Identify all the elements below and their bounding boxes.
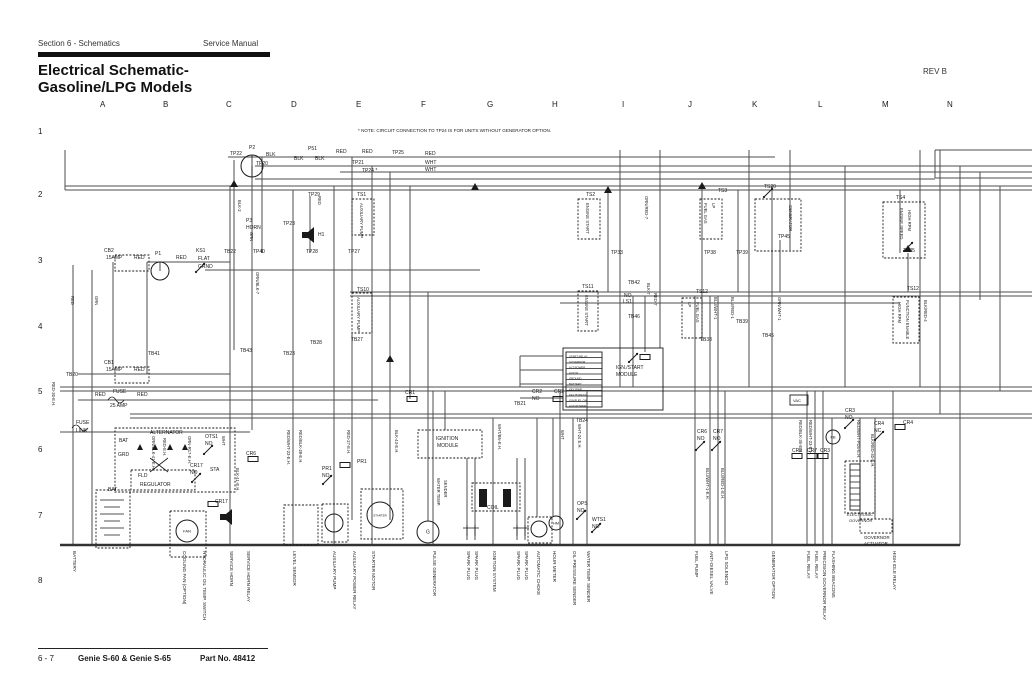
grid-column-letter: I (622, 100, 624, 109)
schematic-label: CR7 (713, 429, 723, 435)
bottom-component-label: FUEL RELAY (814, 551, 819, 579)
schematic-label: TB39 (736, 319, 748, 325)
schematic-label: LP (687, 302, 692, 307)
schematic-label: TP21 (352, 160, 364, 166)
schematic-canvas: ABCDEFGHIJKLMN12345678FANSTARTERHMFBGTP2… (0, 0, 1035, 694)
schematic-label: GRD (118, 452, 130, 458)
grid-row-number: 2 (38, 190, 43, 199)
switch-terminal (636, 353, 638, 355)
schematic-label: PR1 (357, 459, 367, 465)
schematic-label: TP22 (230, 151, 242, 157)
schematic-label: FUEL GAS (703, 203, 708, 224)
schematic-label: TB20 (66, 372, 78, 378)
schematic-label: TP45 (778, 234, 790, 240)
schematic-label: TS10 (357, 287, 369, 293)
schematic-label: NO (697, 436, 705, 442)
schematic-label: CR6 (697, 429, 707, 435)
schematic-label: FUEL GAS (695, 302, 700, 323)
schematic-label: CR2 (554, 389, 564, 395)
bottom-component-label: FLASHING BEACONS (831, 551, 836, 598)
schematic-label: NO (205, 441, 213, 447)
schematic-label: TS11 (582, 284, 594, 290)
schematic-label: WHT-24 E.H. (577, 424, 582, 449)
switch-terminal (330, 475, 332, 477)
schematic-label: TP35 (903, 248, 915, 254)
schematic-label: TB22 (224, 249, 236, 255)
schematic-label: FLAT (198, 256, 210, 262)
switch-terminal (911, 242, 913, 244)
schematic-label: BLK/RED-40-E.H. (870, 434, 875, 468)
grid-row-number: 6 (38, 445, 43, 454)
bottom-component-label: SPARK PLUG (474, 551, 479, 580)
schematic-label: RED-27-E.H. (346, 430, 351, 454)
schematic-label: CR2 (532, 389, 542, 395)
grid-column-letter: C (226, 100, 232, 109)
schematic-label: NO (845, 415, 853, 421)
grid-column-letter: M (882, 100, 889, 109)
schematic-label: BLK (266, 152, 276, 158)
schematic-label: TB27 (351, 337, 363, 343)
schematic-label: TS2 (586, 192, 595, 198)
schematic-label: GROUND (569, 377, 581, 381)
schematic-label: KS1 (196, 248, 206, 254)
schematic-label: GRND (198, 264, 213, 270)
schematic-label: BLU/WHT-1 (713, 297, 718, 320)
schematic-label: WHT (425, 160, 436, 166)
schematic-label: KEY BYPASS (569, 393, 586, 397)
bottom-component-label: BATTERY (72, 551, 77, 572)
bottom-component-label: SERVICE HORN (229, 551, 234, 586)
schematic-label: RED (137, 392, 148, 398)
schematic-label: P3 (246, 218, 252, 224)
schematic-label: BLK (315, 156, 325, 162)
relay-coil (248, 457, 258, 462)
schematic-label: WHT (221, 436, 226, 446)
bottom-component-label: ANTI-DIESEL VALVE (709, 551, 714, 595)
schematic-label: WHT/BN-E.H. (497, 424, 502, 450)
schematic-label: TB43 (240, 348, 252, 354)
bottom-component-label: GENERATOR OPTION (771, 551, 776, 599)
schematic-label: ENGINE START (585, 203, 590, 234)
schematic-label: TP25 (392, 150, 404, 156)
schematic-label: RED (176, 255, 187, 261)
schematic-label: AUXILIARY PUMP (359, 203, 364, 238)
schematic-label: OPS (577, 501, 588, 507)
schematic-label: KEY PWR (569, 388, 582, 392)
schematic-label: BATTERY (569, 382, 582, 386)
schematic-label: TS4 (896, 195, 905, 201)
component-details (72, 155, 860, 536)
component-box (755, 199, 801, 251)
switch-terminal (628, 361, 630, 363)
footer-part-number: Part No. 48412 (200, 654, 255, 663)
schematic-label: COIL (487, 505, 499, 511)
switch-terminal (191, 481, 193, 483)
bottom-component-label: PRECISION GOVERNOR RELAY (822, 551, 827, 620)
schematic-label: CR6 (246, 451, 256, 457)
schematic-label: RED-7 (653, 293, 658, 306)
schematic-label: RED (134, 255, 145, 261)
schematic-label: NO (322, 473, 330, 479)
schematic-label: NO (713, 436, 721, 442)
switch-terminal (199, 473, 201, 475)
grid-column-letter: E (356, 100, 361, 109)
relay-coil (407, 397, 417, 402)
schematic-label: BLU/WHT-1-E.H. (705, 468, 710, 500)
bottom-component-label: STARTER MOTOR (371, 551, 376, 591)
schematic-label: LS1 (623, 299, 632, 305)
schematic-label: AUX POWER (569, 404, 586, 408)
schematic-label: ALT POWER (569, 366, 585, 370)
schematic-label: BLK-2 (237, 200, 242, 212)
schematic-label: START RELAY (569, 355, 588, 359)
schematic-label: RED (70, 296, 75, 305)
schematic-label: H1 (318, 232, 325, 238)
component-circle-label: FB (830, 435, 835, 440)
schematic-label: RED (336, 149, 347, 155)
schematic-label: GRN/WHT-1 (777, 297, 782, 321)
schematic-label: MODULE (437, 443, 459, 449)
bottom-component-label: HYDRAULIC OIL TEMP. SWITCH (202, 551, 207, 620)
bottom-component-label: FUEL RELAY (806, 551, 811, 579)
schematic-label: CR4 (874, 421, 884, 427)
schematic-label: RED (425, 151, 436, 157)
schematic-label: BLK-43-E.H. (394, 430, 399, 454)
schematic-label: TP27 (348, 249, 360, 255)
component-circle-label: HM (553, 521, 559, 526)
schematic-label: 25 AMP (110, 403, 128, 409)
component-box (96, 490, 130, 548)
schematic-label: TP28 (306, 249, 318, 255)
schematic-label: PR1 (322, 466, 332, 472)
schematic-label: TB42 (628, 280, 640, 286)
switch-terminal (763, 196, 765, 198)
schematic-label: TP38 (704, 250, 716, 256)
schematic-label: ELECTRONIC (847, 512, 873, 517)
grid-column-letter: J (688, 100, 692, 109)
schematic-label: ACTUATOR (864, 541, 888, 546)
schematic-label: NO (592, 524, 600, 530)
schematic-label: NO (190, 470, 198, 476)
schematic-label: FUNCTION ENABLE (905, 300, 910, 340)
grid-column-letter: F (421, 100, 426, 109)
schematic-label: TS20 (764, 184, 776, 190)
schematic-label: ORN/BLK-7 (255, 272, 260, 295)
schematic-label: GOVERNOR (849, 518, 872, 523)
switch-terminal (576, 518, 578, 520)
schematic-label: FUSE (113, 389, 127, 395)
bottom-component-label: IGNITION SYSTEM (492, 551, 497, 592)
grid-row-number: 4 (38, 322, 43, 331)
schematic-label: RED (362, 149, 373, 155)
footer-page-number: 6 - 7 (38, 654, 54, 663)
schematic-label: GOVERNOR (569, 360, 585, 364)
schematic-label: LP (711, 203, 716, 208)
schematic-label: P2 (249, 145, 255, 151)
schematic-label: CR1 (405, 390, 415, 396)
switch-terminal (195, 271, 197, 273)
schematic-label: WTS1 (592, 517, 606, 523)
schematic-label: CR17 (215, 499, 228, 505)
schematic-label: CR3 (845, 408, 855, 414)
schematic-label: TS1 (357, 192, 366, 198)
schematic-label: SENDER (443, 480, 448, 497)
schematic-label: REGULATOR (140, 482, 171, 488)
component-circle-label: STARTER (373, 514, 388, 518)
schematic-label: TS12 (696, 289, 708, 295)
schematic-label: HIGH RPM (897, 302, 902, 323)
switch-terminal (591, 531, 593, 533)
schematic-label: 15AMP (106, 255, 123, 261)
schematic-label: TS3 (718, 188, 727, 194)
grid-row-number: 1 (38, 127, 43, 136)
schematic-label: 15AMP (106, 367, 123, 373)
grid-row-number: 5 (38, 387, 43, 396)
schematic-label: GOVERNOR (864, 535, 890, 540)
schematic-label: IGN/FUEL ON (569, 399, 587, 403)
bottom-component-label: AUXILIARY POWER RELAY (352, 551, 357, 609)
schematic-label: OTS1 (205, 434, 218, 440)
schematic-label: TB21 (514, 401, 526, 407)
component-circle-label: G (426, 530, 430, 536)
schematic-label: FUSE (76, 420, 90, 426)
component-box (850, 464, 860, 510)
grid-column-letter: K (752, 100, 758, 109)
schematic-label: TS12 (907, 286, 919, 292)
bottom-component-label: OIL PRESSURE SENDER (572, 551, 577, 606)
schematic-label: RED/BLK-28-E.H. (298, 430, 303, 464)
schematic-label: RED (95, 392, 106, 398)
schematic-label: RED/BLK-35-E.H. (798, 420, 803, 454)
schematic-label: IGN./START (616, 365, 644, 371)
component-circle (531, 521, 547, 537)
schematic-label: BLU/RED-1-E.H. (720, 468, 725, 499)
bottom-component-label: HOUR METER (552, 551, 557, 583)
grid-column-letter: A (100, 100, 106, 109)
relay-coil (553, 397, 563, 402)
grid-column-letter: D (291, 100, 297, 109)
schematic-label: ENGINE START (584, 295, 589, 326)
schematic-label: BLK-41-E.H. (235, 468, 240, 492)
schematic-label: AUX IN (569, 371, 578, 375)
schematic-label: IGNITION (436, 436, 459, 442)
schematic-label: MODULE (616, 372, 638, 378)
bottom-component-label: AUTOMATIC CHOKE (536, 551, 541, 595)
grid-column-letter: N (947, 100, 953, 109)
component-box (322, 504, 348, 542)
bottom-component-label: PULSE GENERATOR (432, 551, 437, 597)
schematic-label: VAC (793, 398, 801, 403)
schematic-label: CR4 (903, 420, 913, 426)
schematic-label: TP20 (256, 161, 268, 167)
bottom-component-label: COOLING FAN (OPTION) (182, 551, 187, 605)
schematic-label: TP33 (611, 250, 623, 256)
grid-column-letter: H (552, 100, 558, 109)
schematic-label: ORN/BLK-41-E.H. (151, 436, 156, 470)
schematic-label: LINK (76, 428, 88, 434)
schematic-label: GRN (249, 232, 254, 241)
schematic-label: ORN-R17-E.H. (187, 436, 192, 464)
footer-rule (38, 648, 268, 649)
grid-row-number: 8 (38, 576, 43, 585)
schematic-label: BLK (294, 156, 304, 162)
schematic-label: TB45 (762, 333, 774, 339)
schematic-label: GENERATOR (788, 205, 793, 231)
switch-terminal (844, 427, 846, 429)
schematic-label: NO (532, 396, 540, 402)
schematic-label: WATER TEMP. (436, 478, 441, 506)
bottom-component-label: HIGH IDLE RELAY (892, 551, 897, 590)
schematic-label: TP39 (736, 250, 748, 256)
bottom-component-label: SPARK PLUG (524, 551, 529, 580)
bottom-component-label: LEVEL SENSOR (292, 551, 297, 586)
switch-terminal (711, 449, 713, 451)
component-box (170, 511, 206, 557)
schematic-label: CB2 (104, 248, 114, 254)
component-box (352, 293, 372, 333)
component-box (284, 505, 318, 545)
grid-row-number: 3 (38, 256, 43, 265)
schematic-label: GRN (94, 296, 99, 305)
relay-coil (340, 463, 350, 468)
schematic-label: TB28 (310, 340, 322, 346)
schematic-label: TB46 (628, 314, 640, 320)
bottom-component-label: WATER TEMP. SENDER (586, 551, 591, 603)
switch-terminal (882, 431, 884, 433)
schematic-label: TP23 (283, 221, 295, 227)
schematic-label: RED-30-E.H. (51, 382, 56, 406)
schematic-label: WHT (560, 430, 565, 440)
schematic-label: CB1 (104, 360, 114, 366)
schematic-label: ENGINE SPEED (899, 208, 904, 239)
switch-terminal (203, 453, 205, 455)
schematic-label: CR3 (820, 448, 830, 454)
schematic-label: TB41 (148, 351, 160, 357)
schematic-label: BAT (119, 438, 128, 444)
wire-horizontal-buses (60, 150, 1032, 432)
schematic-label: TB23 (283, 351, 295, 357)
relay-coil (640, 355, 650, 360)
footer-model: Genie S-60 & Genie S-65 (78, 654, 171, 663)
relay-coil (792, 454, 802, 459)
bottom-component-label: AUXILIARY PUMP (332, 551, 337, 589)
schematic-label: BLU/RED-1 (730, 297, 735, 320)
schematic-label: BAT (108, 487, 117, 493)
schematic-label: TP24 * (362, 168, 377, 174)
switch-terminal (322, 483, 324, 485)
grid-column-letter: L (818, 100, 823, 109)
schematic-page: Section 6 - Schematics Service Manual El… (0, 0, 1035, 694)
schematic-label: ORN/RED-7 (644, 196, 649, 220)
schematic-label: P1 (155, 251, 161, 257)
schematic-label: WHT (425, 167, 436, 173)
schematic-label: TP40 (253, 249, 265, 255)
schematic-label: BLK/RED-4 (923, 300, 928, 322)
bottom-component-label: LPG SOLENOID (724, 551, 729, 586)
schematic-label: TB38 (700, 337, 712, 343)
schematic-label: P51 (308, 146, 317, 152)
bottom-component-label: FUEL PUMP (694, 551, 699, 577)
schematic-label: RED/WHT-PD5-E.H. (856, 420, 861, 458)
schematic-label: NO (577, 508, 585, 514)
schematic-label: AUXILIARY PUMP (356, 297, 361, 332)
schematic-label: RED-E.H. (162, 438, 167, 456)
schematic-label: FLD (138, 473, 148, 479)
component-circle-label: FAN (183, 529, 191, 534)
bottom-component-label: SPARK PLUG (466, 551, 471, 580)
schematic-label: RED (134, 367, 145, 373)
schematic-label: HIGH RPM (907, 210, 912, 231)
grid-column-letter: B (163, 100, 168, 109)
switch-terminal (695, 449, 697, 451)
schematic-label: RED (317, 196, 322, 205)
bottom-component-label: SERVICE HORN RELAY (246, 551, 251, 602)
bottom-component-label: SPARK PLUG (516, 551, 521, 580)
grid-column-letter: G (487, 100, 493, 109)
schematic-label: RED/WHT-23-E.H. (808, 420, 813, 455)
schematic-label: RED/WHT-23-E.H. (286, 430, 291, 465)
schematic-label: BLK-7 (646, 283, 651, 295)
schematic-label: HORN (246, 225, 261, 231)
schematic-label: STA (210, 467, 220, 473)
grid-row-number: 7 (38, 511, 43, 520)
